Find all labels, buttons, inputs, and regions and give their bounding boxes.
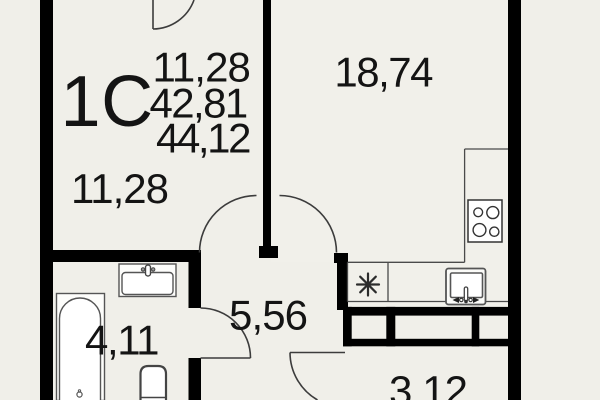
svg-text:1С: 1С (61, 62, 154, 142)
svg-text:44,12: 44,12 (156, 114, 250, 161)
svg-text:11,28: 11,28 (71, 165, 168, 212)
svg-text:5,56: 5,56 (229, 292, 307, 339)
svg-text:4,11: 4,11 (85, 317, 158, 364)
svg-text:18,74: 18,74 (334, 49, 433, 96)
svg-text:3,12: 3,12 (389, 367, 467, 400)
